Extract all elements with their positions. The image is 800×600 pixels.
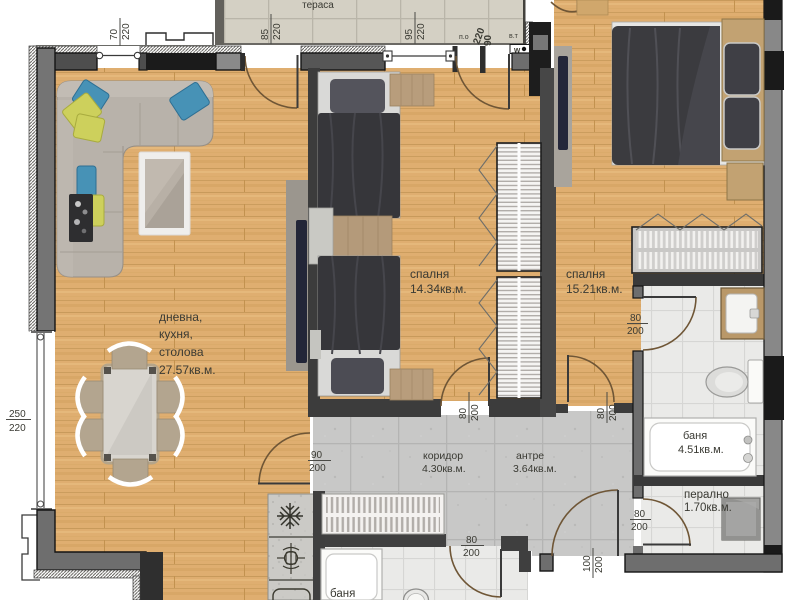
svg-text:14.34кв.м.: 14.34кв.м.: [410, 282, 467, 296]
svg-text:200: 200: [309, 463, 326, 474]
svg-text:баня: баня: [330, 588, 355, 600]
svg-text:1.70кв.м.: 1.70кв.м.: [684, 502, 732, 514]
svg-text:15.21кв.м.: 15.21кв.м.: [566, 282, 623, 296]
svg-text:тераса: тераса: [302, 0, 334, 11]
svg-text:200: 200: [631, 522, 648, 533]
svg-text:200: 200: [470, 404, 481, 421]
svg-text:баня: баня: [683, 430, 707, 442]
svg-text:антре: антре: [516, 450, 544, 462]
svg-text:250: 250: [9, 409, 26, 420]
svg-text:4.51кв.м.: 4.51кв.м.: [678, 444, 724, 456]
svg-text:столова: столова: [159, 345, 204, 359]
svg-text:200: 200: [594, 556, 605, 573]
svg-text:95: 95: [404, 28, 415, 40]
svg-text:27.57кв.м.: 27.57кв.м.: [159, 363, 216, 377]
svg-text:спалня: спалня: [410, 267, 449, 281]
svg-text:3.64кв.м.: 3.64кв.м.: [513, 463, 557, 475]
svg-text:4.30кв.м.: 4.30кв.м.: [422, 463, 466, 475]
svg-text:90: 90: [483, 34, 494, 46]
svg-text:70: 70: [109, 28, 120, 40]
svg-text:85: 85: [260, 28, 271, 40]
svg-text:220: 220: [272, 23, 283, 40]
svg-text:коридор: коридор: [423, 450, 463, 462]
svg-text:200: 200: [608, 404, 619, 421]
svg-text:80: 80: [634, 509, 646, 520]
svg-text:200: 200: [463, 548, 480, 559]
svg-text:220: 220: [416, 23, 427, 40]
svg-text:90: 90: [311, 450, 323, 461]
svg-text:200: 200: [627, 326, 644, 337]
svg-text:перално: перално: [684, 489, 729, 501]
svg-text:п.о: п.о: [459, 34, 469, 41]
svg-text:80: 80: [630, 313, 642, 324]
svg-text:спалня: спалня: [566, 267, 605, 281]
svg-text:220: 220: [121, 23, 132, 40]
svg-text:80: 80: [596, 407, 607, 419]
svg-text:кухня,: кухня,: [159, 327, 193, 341]
svg-text:в.т: в.т: [509, 33, 519, 40]
svg-text:220: 220: [9, 423, 26, 434]
svg-text:дневна,: дневна,: [159, 310, 202, 324]
svg-text:100: 100: [582, 555, 593, 572]
svg-text:80: 80: [458, 407, 469, 419]
svg-text:80: 80: [466, 535, 478, 546]
